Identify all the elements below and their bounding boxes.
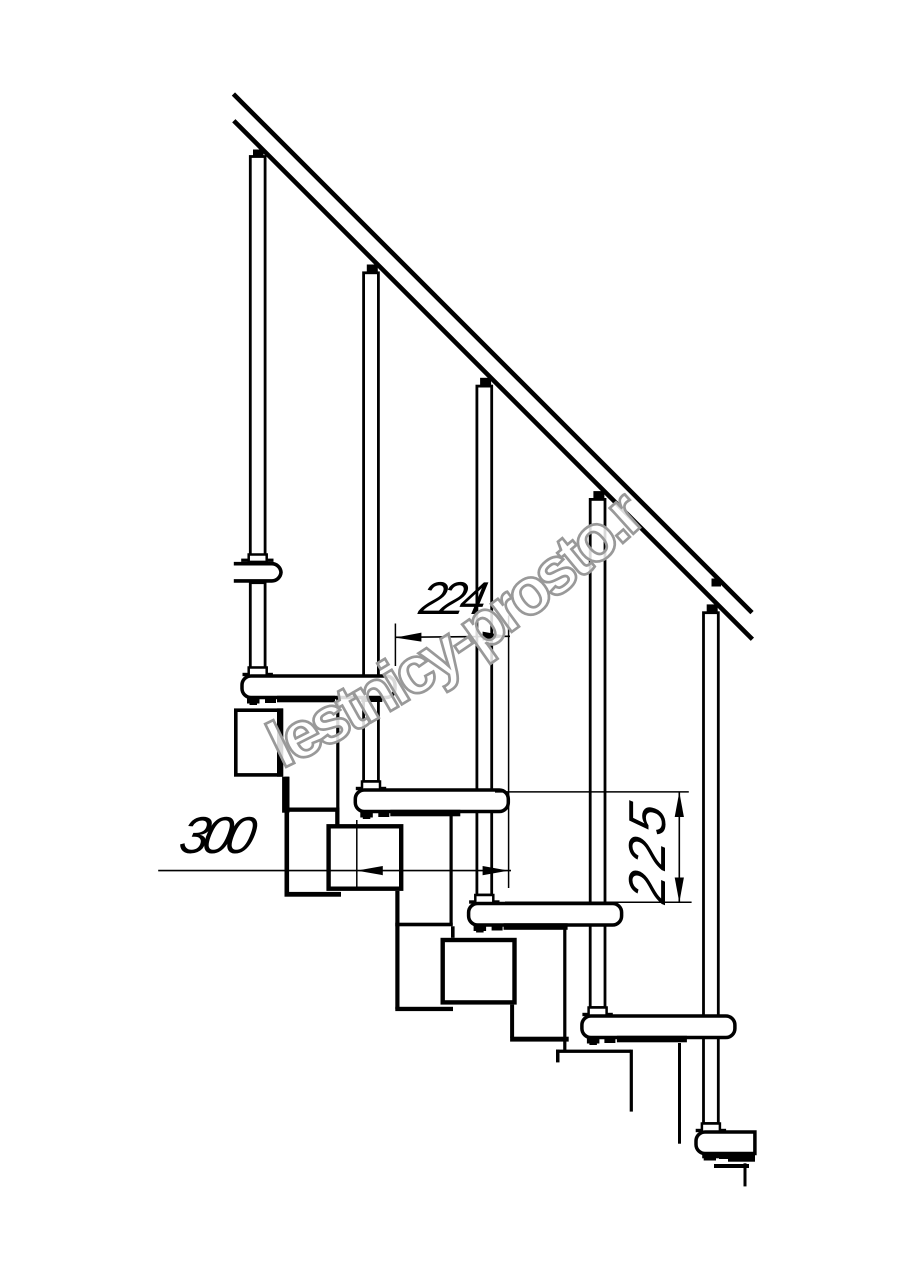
- svg-text:lestnicy-prosto.ru: lestnicy-prosto.ru: [0, 0, 658, 782]
- svg-text:300: 300: [174, 807, 261, 865]
- svg-text:225: 225: [619, 793, 677, 909]
